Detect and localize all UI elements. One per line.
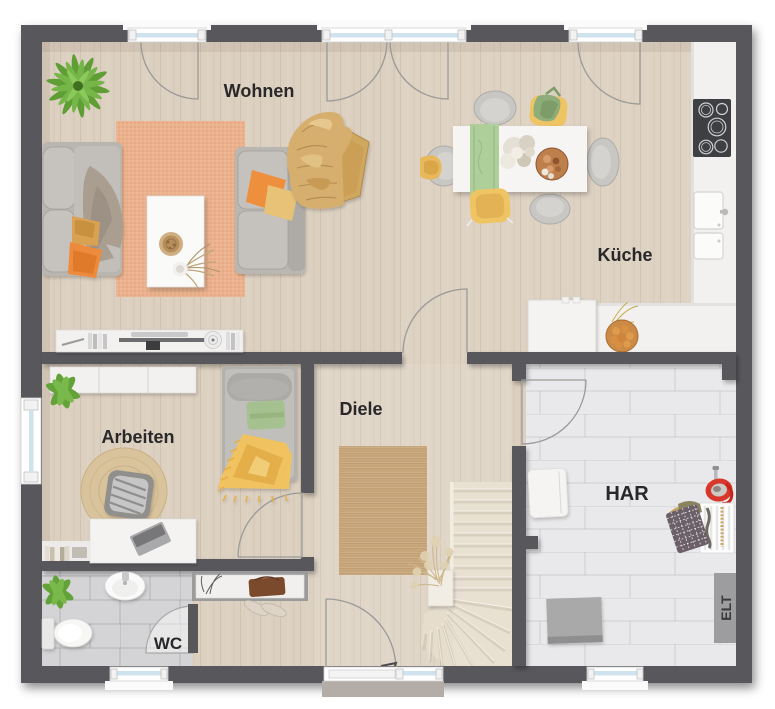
svg-text:HAR: HAR xyxy=(605,483,649,505)
svg-text:Diele: Diele xyxy=(339,399,382,419)
svg-text:Küche: Küche xyxy=(597,245,652,265)
svg-text:WC: WC xyxy=(154,634,182,653)
svg-text:Arbeiten: Arbeiten xyxy=(101,427,174,447)
svg-text:Wohnen: Wohnen xyxy=(224,81,295,101)
svg-text:ELT: ELT xyxy=(718,595,734,621)
